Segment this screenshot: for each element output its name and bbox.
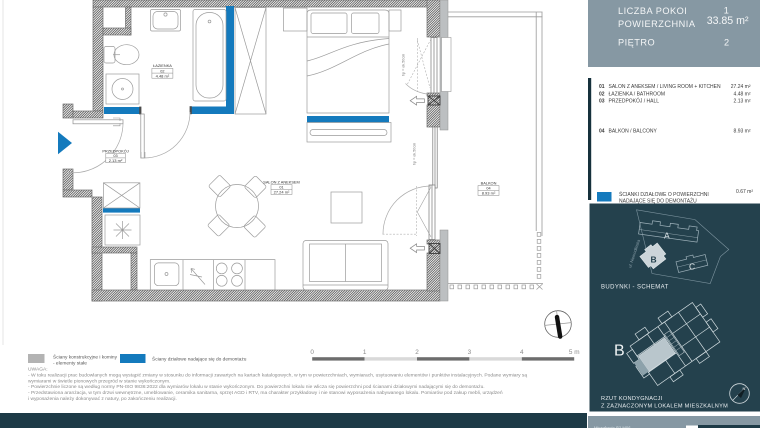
svg-text:2.13 m²: 2.13 m² [734, 99, 751, 105]
svg-text:hp = ok.50cm: hp = ok.50cm [402, 54, 406, 76]
svg-text:- Przedstawiona aranżacja, w t: - Przedstawiona aranżacja, w tym drzwi w… [28, 390, 503, 396]
svg-text:04: 04 [599, 129, 605, 135]
svg-text:Z ZAZNACZONYM LOKALEM MIESZKAL: Z ZAZNACZONYM LOKALEM MIESZKALNYM [601, 404, 728, 410]
svg-text:27.24 m²: 27.24 m² [731, 84, 751, 90]
svg-text:4.48 m²: 4.48 m² [156, 73, 170, 78]
svg-text:PRZEDPOKÓJ: PRZEDPOKÓJ [102, 148, 128, 153]
svg-text:3: 3 [468, 349, 472, 356]
svg-text:4.48 m²: 4.48 m² [734, 91, 751, 97]
svg-text:8.93 m²: 8.93 m² [734, 129, 751, 135]
svg-text:N: N [743, 386, 746, 391]
svg-text:5 m: 5 m [569, 349, 580, 356]
svg-text:2.13 m²: 2.13 m² [109, 158, 123, 163]
svg-text:wymiarami w świetle pionowych: wymiarami w świetle pionowych przegród w… [28, 378, 170, 384]
svg-text:B: B [614, 343, 625, 360]
svg-text:0: 0 [310, 349, 314, 356]
svg-text:PIĘTRO: PIĘTRO [618, 38, 655, 48]
svg-text:i wyposażenia należy dokonywać: i wyposażenia należy dokonywać z natury,… [28, 396, 177, 402]
svg-text:27.24 m²: 27.24 m² [274, 190, 290, 195]
svg-text:BALKON / BALCONY: BALKON / BALCONY [609, 129, 658, 135]
svg-text:UWAGA:: UWAGA: [28, 367, 48, 373]
svg-text:BUDYNKI - SCHEMAT: BUDYNKI - SCHEMAT [601, 285, 669, 291]
svg-text:33.85 m²: 33.85 m² [707, 15, 749, 27]
svg-text:PRZEDPOKÓJ / HALL: PRZEDPOKÓJ / HALL [609, 98, 660, 105]
svg-text:Ściany działowe nadające się d: Ściany działowe nadające się do demontaż… [152, 354, 247, 362]
svg-text:BALKON: BALKON [481, 180, 497, 185]
svg-text:C: C [689, 262, 695, 272]
svg-text:0.67 m²: 0.67 m² [736, 189, 753, 195]
svg-text:B: B [651, 255, 657, 265]
svg-text:1: 1 [724, 5, 730, 15]
svg-text:2: 2 [415, 349, 419, 356]
svg-text:- Powierzchnie liczone są wedł: - Powierzchnie liczone są według normy P… [28, 384, 485, 390]
svg-text:- elementy stałe: - elementy stałe [53, 361, 87, 367]
svg-text:4: 4 [520, 349, 524, 356]
svg-text:ŁAZIENKA / BATHROOM: ŁAZIENKA / BATHROOM [609, 91, 666, 97]
svg-text:POWIERZCHNIA: POWIERZCHNIA [618, 19, 696, 29]
svg-text:01: 01 [599, 84, 605, 90]
svg-text:A: A [664, 231, 670, 241]
svg-text:ŚCIANKI DZIAŁOWE O POWIERZCHNI: ŚCIANKI DZIAŁOWE O POWIERZCHNI [619, 190, 709, 198]
svg-text:8.93 m²: 8.93 m² [482, 191, 496, 196]
svg-text:hp = ok.50cm: hp = ok.50cm [413, 143, 417, 165]
svg-text:Ściany konstrukcyjne i kominy: Ściany konstrukcyjne i kominy [53, 353, 118, 361]
svg-text:02: 02 [599, 91, 605, 97]
svg-text:RZUT KONDYGNACJI: RZUT KONDYGNACJI [601, 396, 663, 402]
svg-text:SALON Z ANEKSEM / LIVING ROOM: SALON Z ANEKSEM / LIVING ROOM + KITCHEN [609, 84, 721, 90]
svg-text:2: 2 [724, 37, 730, 47]
svg-text:- W toku realizacji prac budow: - W toku realizacji prac budowlanych mog… [28, 373, 527, 379]
svg-text:SALON Z ANEKSEM: SALON Z ANEKSEM [263, 179, 300, 184]
svg-text:LICZBA POKOI: LICZBA POKOI [618, 6, 687, 16]
svg-text:03: 03 [599, 99, 605, 105]
svg-text:1: 1 [363, 349, 367, 356]
svg-text:ŁAZIENKA: ŁAZIENKA [153, 63, 172, 68]
